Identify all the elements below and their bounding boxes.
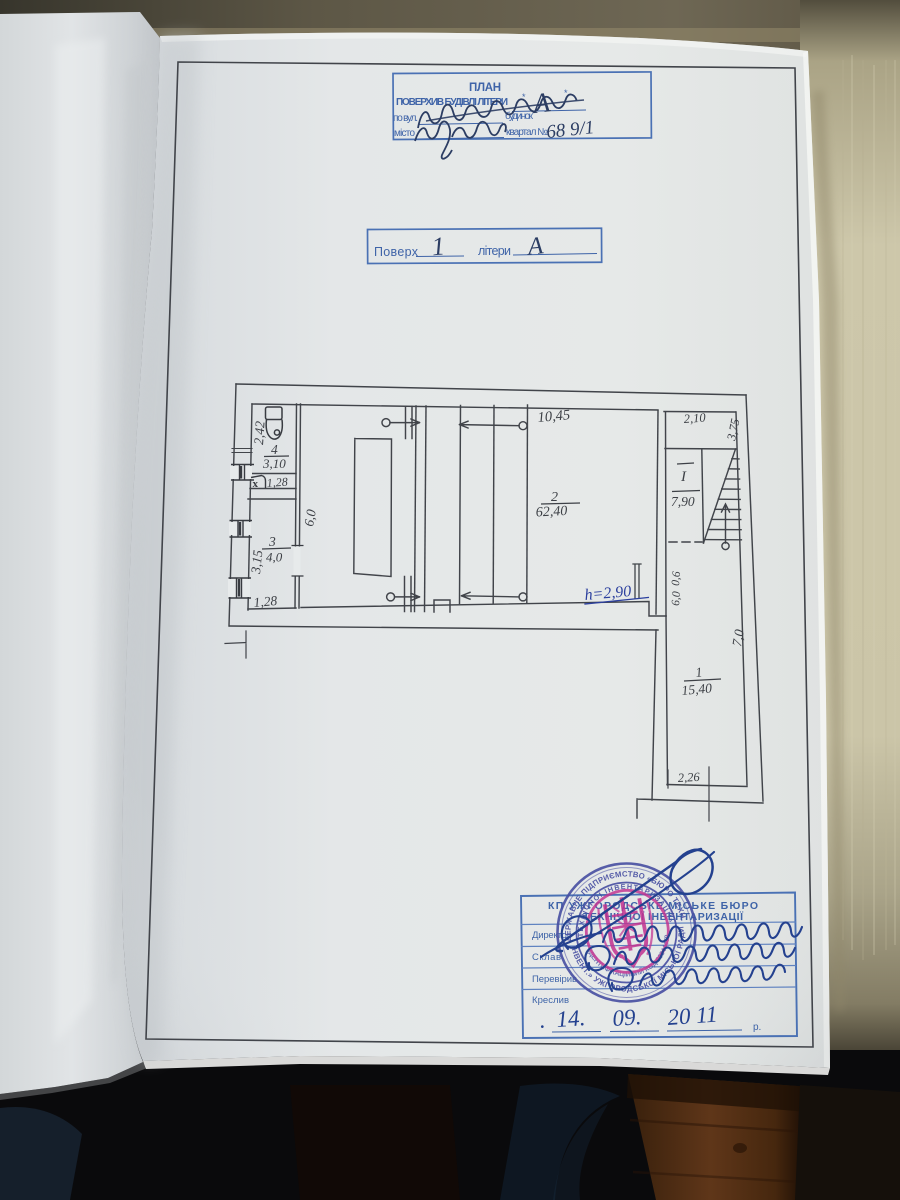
svg-text:3,10: 3,10 — [262, 456, 286, 471]
svg-text:62,40: 62,40 — [535, 504, 567, 521]
svg-text:.: . — [540, 1008, 546, 1033]
svg-text:7,90: 7,90 — [671, 494, 695, 509]
svg-text:1,28: 1,28 — [266, 475, 288, 490]
svg-text:Креслив: Креслив — [532, 995, 569, 1006]
svg-text:квартал №: квартал № — [506, 127, 548, 138]
svg-text:7,0: 7,0 — [729, 628, 747, 647]
svg-text:10,45: 10,45 — [537, 407, 571, 426]
svg-text:1,28: 1,28 — [253, 593, 278, 610]
svg-text:р.: р. — [753, 1022, 761, 1033]
svg-text:4: 4 — [271, 442, 278, 457]
svg-text:x: x — [253, 478, 259, 490]
svg-text:ПЛАН: ПЛАН — [469, 82, 501, 94]
svg-text:6,0: 6,0 — [670, 591, 683, 606]
svg-text:2,26: 2,26 — [677, 770, 700, 785]
svg-text:літери: літери — [478, 244, 511, 258]
svg-text:4,0: 4,0 — [266, 550, 283, 565]
svg-text:0,6: 0,6 — [670, 571, 683, 586]
svg-text:15,40: 15,40 — [681, 680, 713, 698]
svg-text:6,0: 6,0 — [301, 508, 319, 527]
svg-text:3: 3 — [268, 534, 276, 549]
svg-text:3,15: 3,15 — [248, 549, 266, 575]
svg-text:14.: 14. — [556, 1005, 586, 1032]
svg-text:20 11: 20 11 — [667, 1002, 719, 1030]
svg-text:09.: 09. — [612, 1004, 642, 1031]
svg-text:2,10: 2,10 — [683, 410, 707, 426]
svg-text:2: 2 — [551, 490, 558, 505]
svg-text:місто: місто — [394, 128, 415, 139]
svg-text:1: 1 — [430, 231, 445, 261]
svg-text:Поверх: Поверх — [374, 245, 419, 259]
svg-text:2,42: 2,42 — [251, 420, 268, 445]
svg-text:Перевірив: Перевірив — [532, 974, 577, 985]
svg-text:I: I — [680, 469, 687, 485]
svg-text:по вул.: по вул. — [393, 113, 418, 124]
